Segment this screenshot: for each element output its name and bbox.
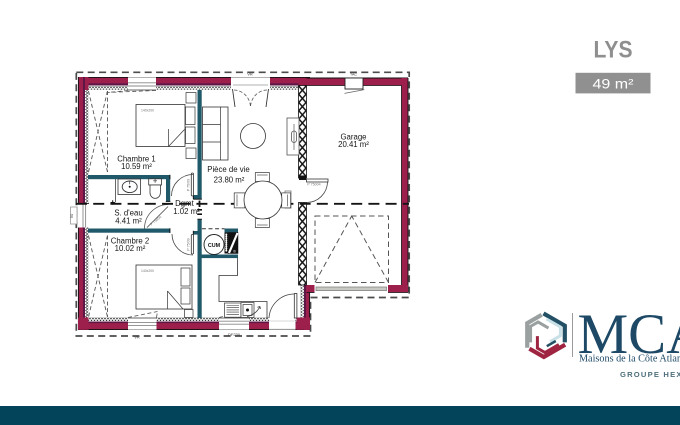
svg-text:49 m²: 49 m² — [593, 75, 634, 91]
svg-text:Maisons de la Côte Atlantique: Maisons de la Côte Atlantique — [579, 354, 680, 365]
svg-text:TAC: TAC — [350, 73, 357, 77]
svg-text:4.41 m²: 4.41 m² — [115, 217, 142, 226]
svg-text:th: th — [234, 250, 237, 254]
svg-text:CUM: CUM — [208, 243, 221, 249]
svg-text:P 75004: P 75004 — [307, 183, 320, 187]
svg-text:20.41 m²: 20.41 m² — [338, 140, 369, 149]
svg-text:10.02 m²: 10.02 m² — [115, 244, 146, 253]
svg-text:10.59 m²: 10.59 m² — [121, 162, 152, 171]
svg-text:140x200: 140x200 — [141, 109, 154, 113]
svg-text:P 75/09: P 75/09 — [187, 179, 191, 191]
svg-text:P 75/09: P 75/09 — [187, 238, 191, 250]
svg-text:LYS: LYS — [594, 37, 633, 64]
svg-text:VR: VR — [134, 335, 140, 340]
svg-text:VR: VR — [247, 72, 253, 77]
svg-text:140x200: 140x200 — [141, 269, 154, 273]
svg-text:90: 90 — [69, 213, 74, 218]
svg-text:1.02 m²: 1.02 m² — [173, 207, 200, 216]
svg-text:23.80 m²: 23.80 m² — [214, 175, 245, 184]
svg-text:DF230: DF230 — [228, 332, 241, 337]
svg-text:Pièce de vie: Pièce de vie — [207, 165, 249, 174]
svg-text:GROUPE HEXAÔM: GROUPE HEXAÔM — [620, 370, 680, 379]
